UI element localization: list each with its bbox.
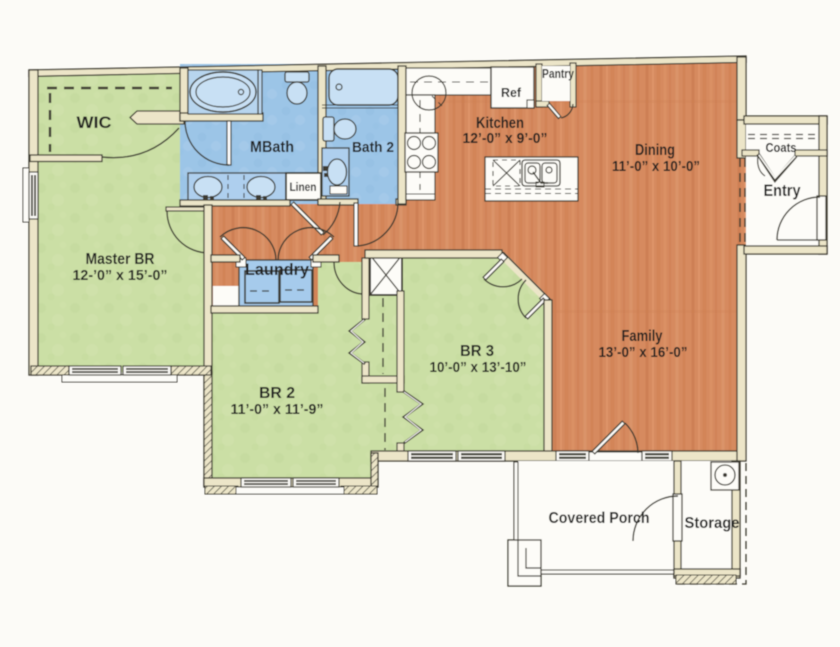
svg-text:Dining: Dining: [635, 142, 675, 159]
svg-text:13’-0” x 16’-0”: 13’-0” x 16’-0”: [599, 345, 688, 361]
svg-text:10’-0” x 13’-10”: 10’-0” x 13’-10”: [430, 360, 527, 376]
svg-text:BR 2: BR 2: [259, 385, 295, 402]
svg-text:Entry: Entry: [764, 181, 801, 200]
svg-text:12-’0” x 15’-0”: 12-’0” x 15’-0”: [73, 267, 168, 284]
svg-text:Bath 2: Bath 2: [352, 139, 394, 156]
svg-text:11’-0” x 10’-0”: 11’-0” x 10’-0”: [612, 159, 700, 175]
svg-text:Master BR: Master BR: [86, 251, 155, 268]
svg-text:Family: Family: [622, 328, 663, 345]
svg-text:Coats: Coats: [766, 141, 797, 155]
svg-text:Ref: Ref: [501, 85, 522, 100]
svg-text:12’-0” x 9’-0”: 12’-0” x 9’-0”: [463, 131, 548, 147]
svg-text:Covered Porch: Covered Porch: [549, 510, 650, 527]
svg-text:Kitchen: Kitchen: [476, 115, 524, 132]
svg-text:Linen: Linen: [290, 182, 317, 194]
svg-text:11’-0” x 11’-9”: 11’-0” x 11’-9”: [231, 402, 324, 418]
svg-text:Storage: Storage: [685, 515, 740, 532]
svg-text:BR 3: BR 3: [460, 343, 494, 360]
svg-text:Pantry: Pantry: [542, 67, 574, 81]
svg-text:WIC: WIC: [77, 113, 112, 132]
svg-text:MBath: MBath: [250, 139, 294, 156]
svg-text:Laundry: Laundry: [245, 261, 310, 279]
